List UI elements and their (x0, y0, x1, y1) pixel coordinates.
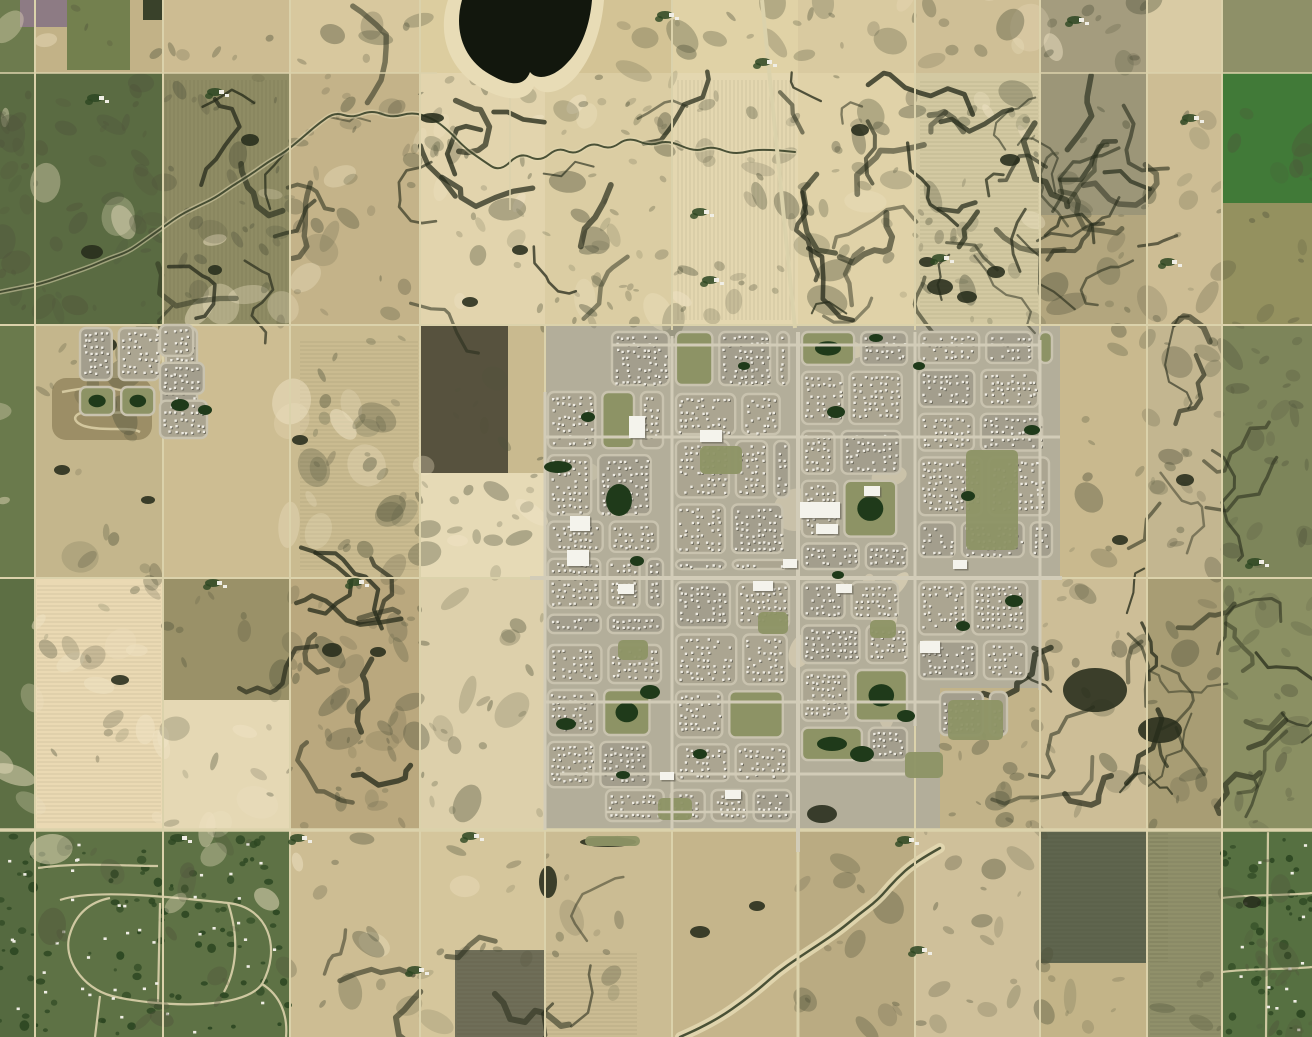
satellite-map[interactable] (0, 0, 1312, 1037)
satellite-image-viewport: Satellite aerial view of a prairie town … (0, 0, 1312, 1037)
